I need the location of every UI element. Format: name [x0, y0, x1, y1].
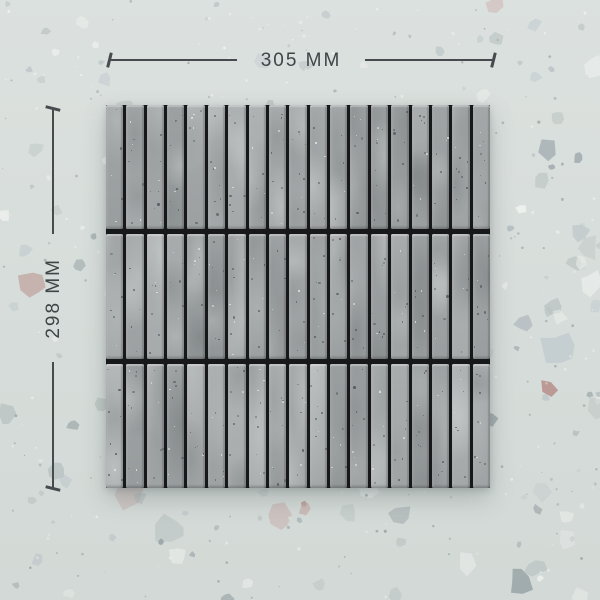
pore-speck [420, 198, 421, 199]
pore-speck [435, 338, 436, 339]
pore-speck [440, 171, 442, 173]
pore-speck [382, 129, 383, 130]
pore-speck [212, 267, 213, 268]
pore-speck [160, 161, 161, 162]
terrazzo-chip [553, 310, 568, 326]
pore-speck [351, 280, 353, 282]
pore-speck [182, 305, 184, 307]
pore-speck [131, 407, 132, 408]
pore-speck [299, 173, 300, 174]
pore-speck [382, 265, 383, 266]
terrazzo-chip [52, 49, 60, 57]
pore-speck [110, 443, 111, 444]
pore-speck [232, 354, 233, 355]
pore-speck [403, 437, 405, 439]
terrazzo-chip [340, 504, 355, 522]
tile-strip [350, 105, 367, 229]
terrazzo-speck [544, 32, 547, 35]
pore-speck [339, 238, 341, 240]
pore-speck [253, 116, 254, 117]
terrazzo-speck [14, 414, 17, 417]
pore-speck [215, 338, 216, 339]
pore-speck [313, 298, 315, 300]
pore-speck [262, 173, 264, 175]
tile-strip [167, 364, 184, 488]
pore-speck [271, 212, 273, 214]
terrazzo-speck [583, 404, 586, 407]
pore-speck [251, 278, 253, 280]
pore-speck [194, 264, 195, 265]
pore-speck [281, 117, 282, 118]
pore-speck [199, 274, 200, 275]
terrazzo-chip [580, 503, 585, 509]
pore-speck [229, 454, 231, 456]
tile-strip [147, 234, 164, 358]
tile-strip [412, 234, 429, 358]
terrazzo-chip [541, 380, 558, 397]
terrazzo-speck [267, 24, 269, 26]
pore-speck [107, 369, 109, 371]
pore-speck [156, 292, 158, 294]
terrazzo-speck [2, 168, 3, 169]
terrazzo-speck [95, 515, 98, 518]
terrazzo-chip [189, 551, 195, 557]
terrazzo-speck [229, 516, 231, 518]
terrazzo-speck [475, 9, 477, 11]
tile-strip [371, 234, 388, 358]
terrazzo-speck [517, 232, 520, 235]
pore-speck [336, 293, 338, 295]
terrazzo-speck [65, 218, 67, 220]
pore-speck [111, 175, 112, 176]
terrazzo-speck [208, 96, 210, 98]
pore-speck [479, 145, 481, 147]
pore-speck [297, 350, 298, 351]
pore-speck [257, 426, 259, 428]
terrazzo-speck [90, 86, 91, 87]
pore-speck [110, 310, 111, 311]
pore-speck [483, 141, 484, 142]
pore-speck [158, 191, 159, 192]
pore-speck [195, 222, 197, 224]
pore-speck [466, 187, 468, 189]
pore-speck [352, 425, 353, 426]
pore-speck [133, 139, 135, 141]
pore-speck [218, 339, 220, 341]
terrazzo-chip [587, 392, 594, 398]
pore-speck [272, 309, 273, 310]
pore-speck [393, 129, 395, 131]
terrazzo-chip [109, 534, 116, 542]
terrazzo-speck [104, 572, 105, 573]
pore-speck [343, 162, 345, 164]
pore-speck [323, 255, 325, 257]
pore-speck [480, 132, 481, 133]
pore-speck [315, 418, 317, 420]
terrazzo-speck [74, 246, 76, 248]
pore-speck [233, 277, 235, 279]
pore-speck [113, 316, 115, 318]
pore-speck [419, 115, 421, 117]
terrazzo-speck [38, 331, 40, 333]
pore-speck [394, 459, 396, 461]
pore-speck [168, 474, 169, 475]
terrazzo-speck [432, 525, 434, 527]
terrazzo-speck [592, 349, 595, 352]
pore-speck [332, 239, 334, 241]
pore-speck [434, 203, 435, 204]
terrazzo-speck [48, 534, 50, 536]
terrazzo-speck [80, 74, 82, 76]
pore-speck [423, 116, 425, 118]
terrazzo-chip [182, 511, 188, 516]
terrazzo-speck [279, 586, 280, 587]
tile-strip [289, 105, 306, 229]
pore-speck [417, 347, 418, 348]
pore-speck [233, 316, 235, 318]
pore-speck [438, 474, 440, 476]
terrazzo-speck [595, 468, 597, 470]
pore-speck [352, 338, 354, 340]
pore-speck [463, 288, 464, 289]
tile-strip [208, 364, 225, 488]
terrazzo-speck [292, 39, 294, 41]
pore-speck [352, 451, 354, 453]
pore-speck [318, 282, 320, 284]
pore-speck [298, 290, 299, 291]
mosaic-row [106, 234, 490, 358]
pore-speck [108, 474, 110, 476]
pore-speck [139, 309, 140, 310]
pore-speck [406, 303, 408, 305]
pore-speck [115, 221, 117, 223]
pore-speck [209, 264, 210, 265]
terrazzo-speck [169, 556, 172, 559]
tile-strip [249, 364, 266, 488]
pore-speck [282, 425, 283, 426]
pore-speck [341, 135, 343, 137]
terrazzo-speck [384, 596, 387, 599]
pore-speck [263, 380, 265, 382]
pore-speck [120, 147, 122, 149]
tile-strip [412, 364, 429, 488]
pore-speck [221, 454, 223, 456]
terrazzo-speck [571, 324, 574, 327]
pore-speck [131, 222, 133, 224]
pore-speck [170, 201, 171, 202]
tile-strip [147, 364, 164, 488]
pore-speck [259, 369, 261, 371]
pore-speck [356, 135, 358, 137]
pore-speck [332, 313, 334, 315]
pore-speck [324, 218, 325, 219]
terrazzo-speck [10, 79, 12, 81]
terrazzo-chip [533, 504, 542, 515]
terrazzo-speck [499, 255, 500, 256]
terrazzo-speck [100, 95, 101, 96]
pore-speck [434, 288, 436, 290]
terrazzo-chip [577, 469, 581, 472]
pore-speck [128, 405, 129, 406]
pore-speck [243, 370, 245, 372]
terrazzo-chip [520, 495, 527, 500]
pore-speck [115, 453, 117, 455]
pore-speck [116, 345, 117, 346]
pore-speck [153, 477, 155, 479]
pore-speck [487, 319, 488, 320]
terrazzo-chip [559, 511, 574, 523]
terrazzo-chip [39, 490, 45, 496]
pore-speck [299, 134, 301, 136]
terrazzo-chip [298, 21, 302, 25]
terrazzo-speck [129, 0, 132, 3]
terrazzo-speck [506, 28, 508, 30]
pore-speck [302, 449, 304, 451]
terrazzo-speck [96, 90, 99, 93]
terrazzo-speck [338, 565, 340, 567]
pore-speck [336, 392, 338, 394]
pore-speck [255, 416, 257, 418]
terrazzo-speck [251, 597, 253, 599]
pore-speck [232, 187, 233, 188]
pore-speck [271, 152, 273, 154]
terrazzo-chip [214, 2, 220, 7]
terrazzo-chip [80, 225, 85, 230]
pore-speck [215, 479, 217, 481]
terrazzo-speck [592, 309, 594, 311]
pore-speck [373, 323, 375, 325]
pore-speck [464, 476, 466, 478]
pore-speck [173, 381, 175, 383]
tile-strip [228, 105, 245, 229]
pore-speck [459, 157, 461, 159]
height-dimension-label: 298 MM [44, 234, 63, 363]
pore-speck [421, 120, 422, 121]
tile-strip [228, 234, 245, 358]
pore-speck [133, 289, 135, 291]
terrazzo-speck [365, 494, 368, 497]
pore-speck [149, 352, 151, 354]
terrazzo-speck [43, 74, 45, 76]
terrazzo-chip [517, 542, 522, 549]
terrazzo-chip [595, 242, 600, 249]
pore-speck [363, 347, 364, 348]
terrazzo-chip [19, 245, 33, 257]
tile-strip [452, 234, 469, 358]
pore-speck [455, 147, 456, 148]
pore-speck [376, 142, 378, 144]
terrazzo-speck [495, 132, 497, 134]
terrazzo-speck [530, 336, 532, 338]
terrazzo-speck [569, 355, 572, 358]
pore-speck [212, 417, 213, 418]
terrazzo-speck [209, 540, 211, 542]
pore-speck [424, 152, 426, 154]
pore-speck [353, 303, 355, 305]
terrazzo-speck [501, 465, 504, 468]
terrazzo-speck [84, 262, 85, 263]
terrazzo-chip [400, 94, 404, 98]
pore-speck [316, 282, 317, 283]
terrazzo-speck [593, 198, 595, 200]
pore-speck [237, 367, 238, 368]
terrazzo-chip [396, 538, 406, 547]
pore-speck [302, 397, 303, 398]
pore-speck [406, 420, 407, 421]
pore-speck [424, 122, 425, 123]
terrazzo-speck [7, 10, 10, 13]
terrazzo-speck [31, 397, 34, 400]
pore-speck [214, 115, 216, 117]
pore-speck [424, 330, 426, 332]
terrazzo-speck [424, 491, 426, 493]
pore-speck [173, 252, 174, 253]
pore-speck [278, 130, 280, 132]
pore-speck [315, 436, 317, 438]
pore-speck [230, 333, 232, 335]
terrazzo-chip [532, 153, 536, 157]
tile-strip [126, 105, 143, 229]
tile-strip [310, 364, 327, 488]
terrazzo-speck [297, 547, 300, 550]
terrazzo-speck [574, 271, 576, 273]
pore-speck [374, 219, 375, 220]
terrazzo-chip [66, 420, 79, 429]
pore-speck [132, 144, 133, 145]
pore-speck [158, 402, 159, 403]
pore-speck [298, 131, 300, 133]
terrazzo-speck [526, 494, 527, 495]
terrazzo-chip [220, 594, 235, 600]
pore-speck [229, 204, 231, 206]
terrazzo-chip [51, 520, 56, 524]
terrazzo-speck [476, 553, 478, 555]
terrazzo-chip [76, 16, 89, 29]
terrazzo-chip [530, 71, 543, 82]
tile-strip [473, 234, 490, 358]
terrazzo-speck [531, 211, 534, 214]
terrazzo-chip [30, 185, 35, 190]
terrazzo-chip [389, 587, 402, 600]
pore-speck [402, 458, 403, 459]
pore-speck [362, 369, 363, 370]
pore-speck [356, 212, 358, 214]
pore-speck [128, 161, 129, 162]
terrazzo-chip [476, 89, 490, 103]
pore-speck [193, 114, 195, 116]
pore-speck [446, 295, 448, 297]
terrazzo-speck [288, 517, 291, 520]
pore-speck [284, 258, 286, 260]
pore-speck [169, 389, 171, 391]
terrazzo-speck [417, 9, 419, 11]
tile-strip [269, 364, 286, 488]
tile-strip [167, 234, 184, 358]
terrazzo-chip [513, 315, 533, 332]
terrazzo-speck [591, 218, 594, 221]
tile-strip [432, 105, 449, 229]
terrazzo-speck [531, 126, 533, 128]
terrazzo-chip [555, 231, 560, 235]
width-dimension: 305 MM [109, 48, 493, 72]
pore-speck [174, 191, 176, 193]
pore-speck [264, 193, 265, 194]
terrazzo-speck [495, 376, 497, 378]
terrazzo-speck [24, 455, 25, 456]
terrazzo-speck [307, 516, 308, 517]
dimension-line [52, 108, 54, 234]
terrazzo-speck [75, 175, 78, 178]
pore-speck [478, 216, 479, 217]
terrazzo-speck [75, 66, 76, 67]
terrazzo-speck [510, 237, 513, 240]
pore-speck [454, 412, 455, 413]
terrazzo-chip [297, 517, 303, 523]
pore-speck [154, 208, 155, 209]
pore-speck [372, 468, 374, 470]
terrazzo-chip [32, 553, 43, 566]
terrazzo-speck [448, 553, 450, 555]
pore-speck [129, 268, 131, 270]
terrazzo-speck [394, 96, 396, 98]
pore-speck [258, 346, 260, 348]
terrazzo-speck [537, 121, 540, 124]
pore-speck [142, 183, 144, 185]
terrazzo-speck [514, 236, 516, 238]
terrazzo-speck [547, 569, 550, 572]
pore-speck [480, 153, 482, 155]
terrazzo-speck [540, 571, 542, 573]
pore-speck [385, 213, 386, 214]
pore-speck [477, 421, 479, 423]
pore-speck [479, 375, 481, 377]
terrazzo-chip [388, 507, 410, 525]
pore-speck [398, 479, 400, 481]
terrazzo-speck [47, 537, 50, 540]
terrazzo-speck [551, 177, 553, 179]
terrazzo-chip [302, 34, 306, 38]
terrazzo-speck [550, 478, 553, 481]
terrazzo-chip [548, 66, 555, 72]
pore-speck [182, 115, 183, 116]
pore-speck [242, 391, 244, 393]
pore-speck [158, 334, 160, 336]
pore-speck [128, 468, 129, 469]
terrazzo-speck [301, 30, 302, 31]
pore-speck [321, 412, 323, 414]
pore-speck [281, 187, 283, 189]
terrazzo-speck [519, 466, 521, 468]
terrazzo-speck [229, 13, 232, 16]
pore-speck [436, 275, 437, 276]
pore-speck [114, 469, 116, 471]
tile-strip [371, 105, 388, 229]
terrazzo-speck [344, 556, 346, 558]
terrazzo-speck [595, 274, 597, 276]
pore-speck [460, 370, 461, 371]
tile-strip [228, 364, 245, 488]
pore-speck [317, 406, 318, 407]
terrazzo-speck [217, 580, 220, 583]
pore-speck [425, 370, 427, 372]
pore-speck [193, 140, 196, 143]
pore-speck [234, 122, 236, 124]
pore-speck [477, 280, 478, 281]
pore-speck [281, 223, 282, 224]
terrazzo-chip [41, 28, 52, 35]
pore-speck [393, 132, 395, 134]
tile-strip [330, 364, 347, 488]
